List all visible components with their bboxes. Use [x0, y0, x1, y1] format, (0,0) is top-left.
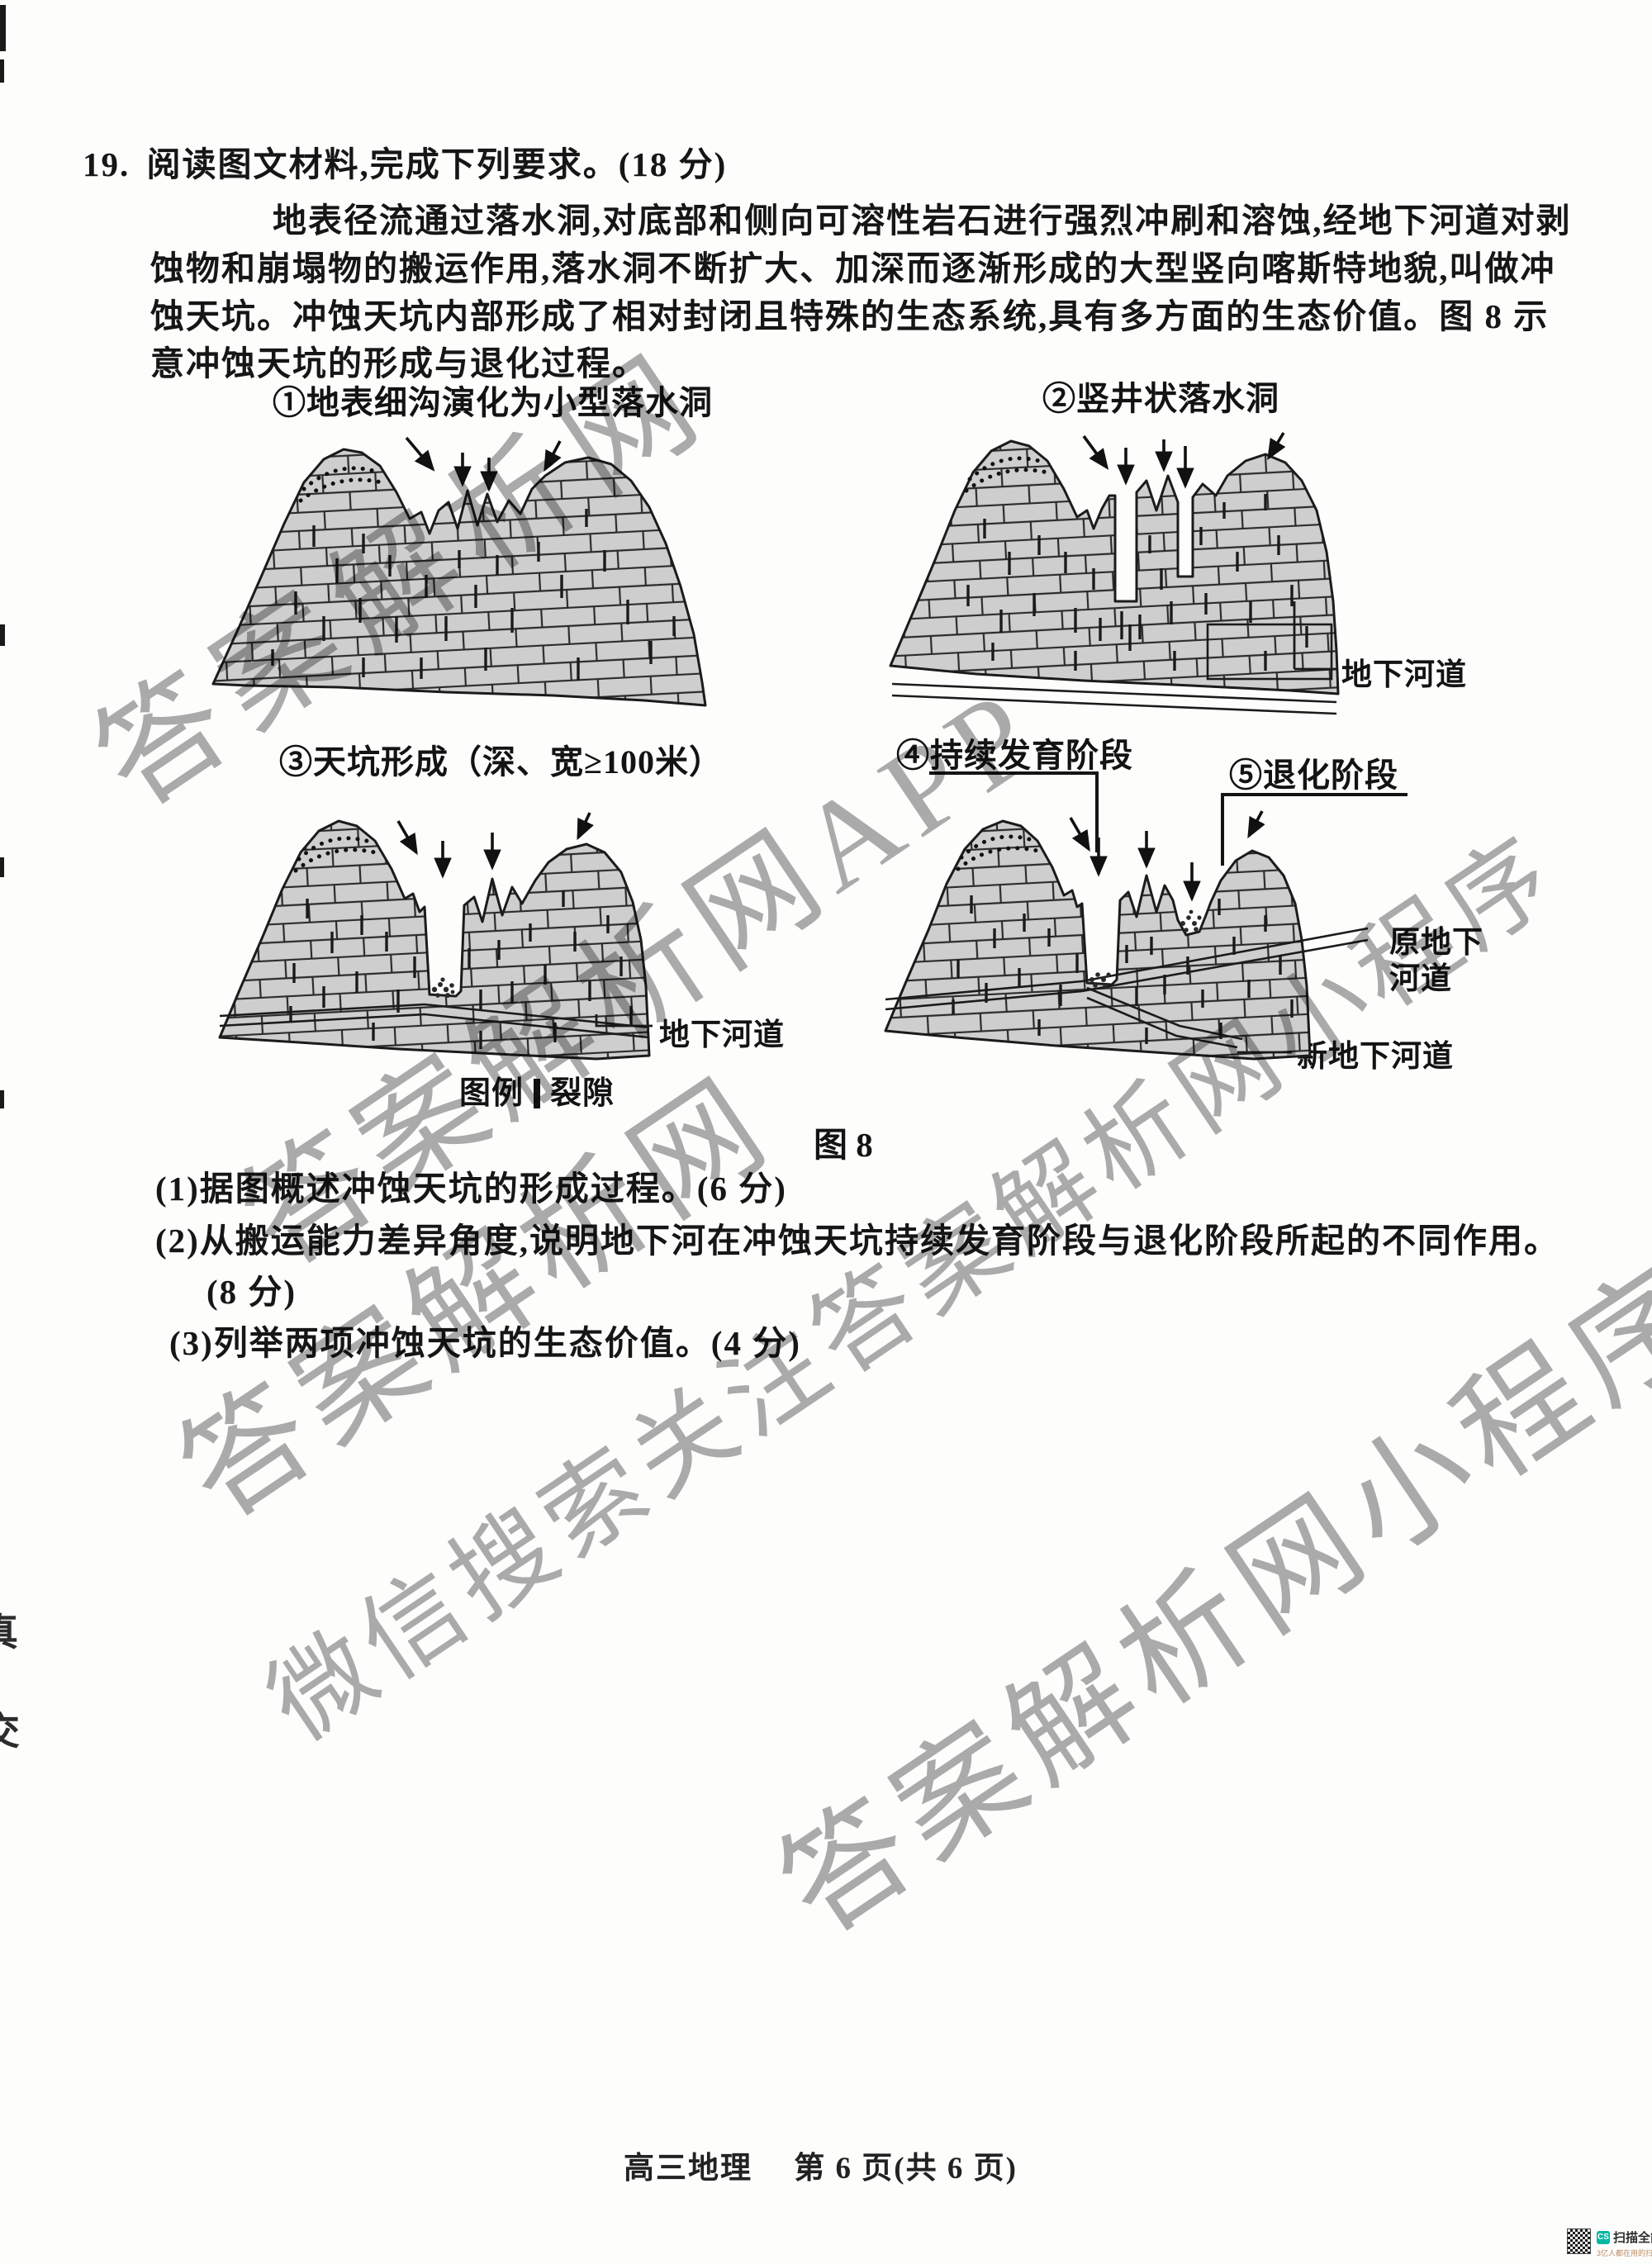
subquestion-2: (2)从搬运能力差异角度,说明地下河在冲蚀天坑持续发育阶段与退化阶段所起的不同作…: [155, 1213, 1559, 1262]
clipped-edge-character: 真: [0, 1602, 18, 1657]
scan-artifact: [0, 857, 4, 877]
underground-channel-label: 地下河道: [1341, 649, 1467, 694]
scan-artifact: [0, 5, 6, 51]
paragraph-line: 蚀物和崩塌物的搬运作用,落水洞不断扩大、加深而逐渐形成的大型竖向喀斯特地貌,叫做…: [150, 240, 1556, 290]
panel-3-diagram: [208, 783, 654, 1097]
paragraph-line: 地表径流通过落水洞,对底部和侧向可溶性岩石进行强烈冲刷和溶蚀,经地下河道对剥: [273, 192, 1572, 242]
panel-3-title: ③天坑形成（深、宽≥100米）: [279, 735, 723, 783]
camscanner-icon: CS: [1597, 2231, 1610, 2244]
old-channel-label: 原地下 河道: [1389, 925, 1483, 998]
scanner-badge: CS 扫描全能王 3亿人都在用的扫描App: [1567, 2228, 1652, 2258]
question-stem: 阅读图文材料,完成下列要求。(18 分): [147, 145, 728, 183]
panel-2-diagram: [877, 403, 1340, 733]
panel-4-leader-line: [929, 771, 1099, 775]
qr-code-icon: [1567, 2228, 1591, 2254]
panel-4-title: ④持续发育阶段: [896, 729, 1133, 776]
scan-artifact: [0, 624, 5, 646]
page-footer: 高三地理 第 6 页(共 6 页): [624, 2143, 1018, 2187]
figure-caption: 图 8: [814, 1117, 873, 1166]
scanner-app-name: 扫描全能王: [1613, 2228, 1652, 2246]
underground-channel-label: 地下河道: [659, 1009, 785, 1054]
watermark-text: 答案解析网小程序: [739, 1213, 1652, 1967]
clipped-edge-character: 交: [0, 1702, 20, 1756]
scan-artifact: [0, 59, 4, 83]
subquestion-2-points: (8 分): [206, 1264, 297, 1313]
panel-5-leader-line: [1221, 793, 1408, 796]
subquestion-1: (1)据图概述冲蚀天坑的形成过程。(6 分): [155, 1160, 787, 1210]
panel-4-leader-line: [1095, 771, 1099, 852]
subquestion-3: (3)列举两项冲蚀天坑的生态价值。(4 分): [169, 1315, 801, 1365]
question-number: 19.: [83, 145, 130, 183]
exam-page: 19. 阅读图文材料,完成下列要求。(18 分) 地表径流通过落水洞,对底部和侧…: [0, 0, 1652, 2264]
old-channel-label-line1: 原地下: [1389, 925, 1483, 961]
water-arrows: [406, 438, 560, 489]
panel-4-5-diagram: [874, 783, 1370, 1097]
old-channel-label-line2: 河道: [1389, 961, 1483, 998]
panel-1-diagram: [198, 410, 727, 736]
panel-5-leader-line: [1221, 793, 1224, 866]
paragraph-line: 蚀天坑。冲蚀天坑内部形成了相对封闭且特殊的生态系统,具有多方面的生态价值。图 8…: [150, 288, 1549, 338]
scan-artifact: [0, 1090, 4, 1108]
scanner-app-tagline: 3亿人都在用的扫描App: [1597, 2247, 1652, 2258]
question-header: 19. 阅读图文材料,完成下列要求。(18 分): [83, 136, 727, 186]
